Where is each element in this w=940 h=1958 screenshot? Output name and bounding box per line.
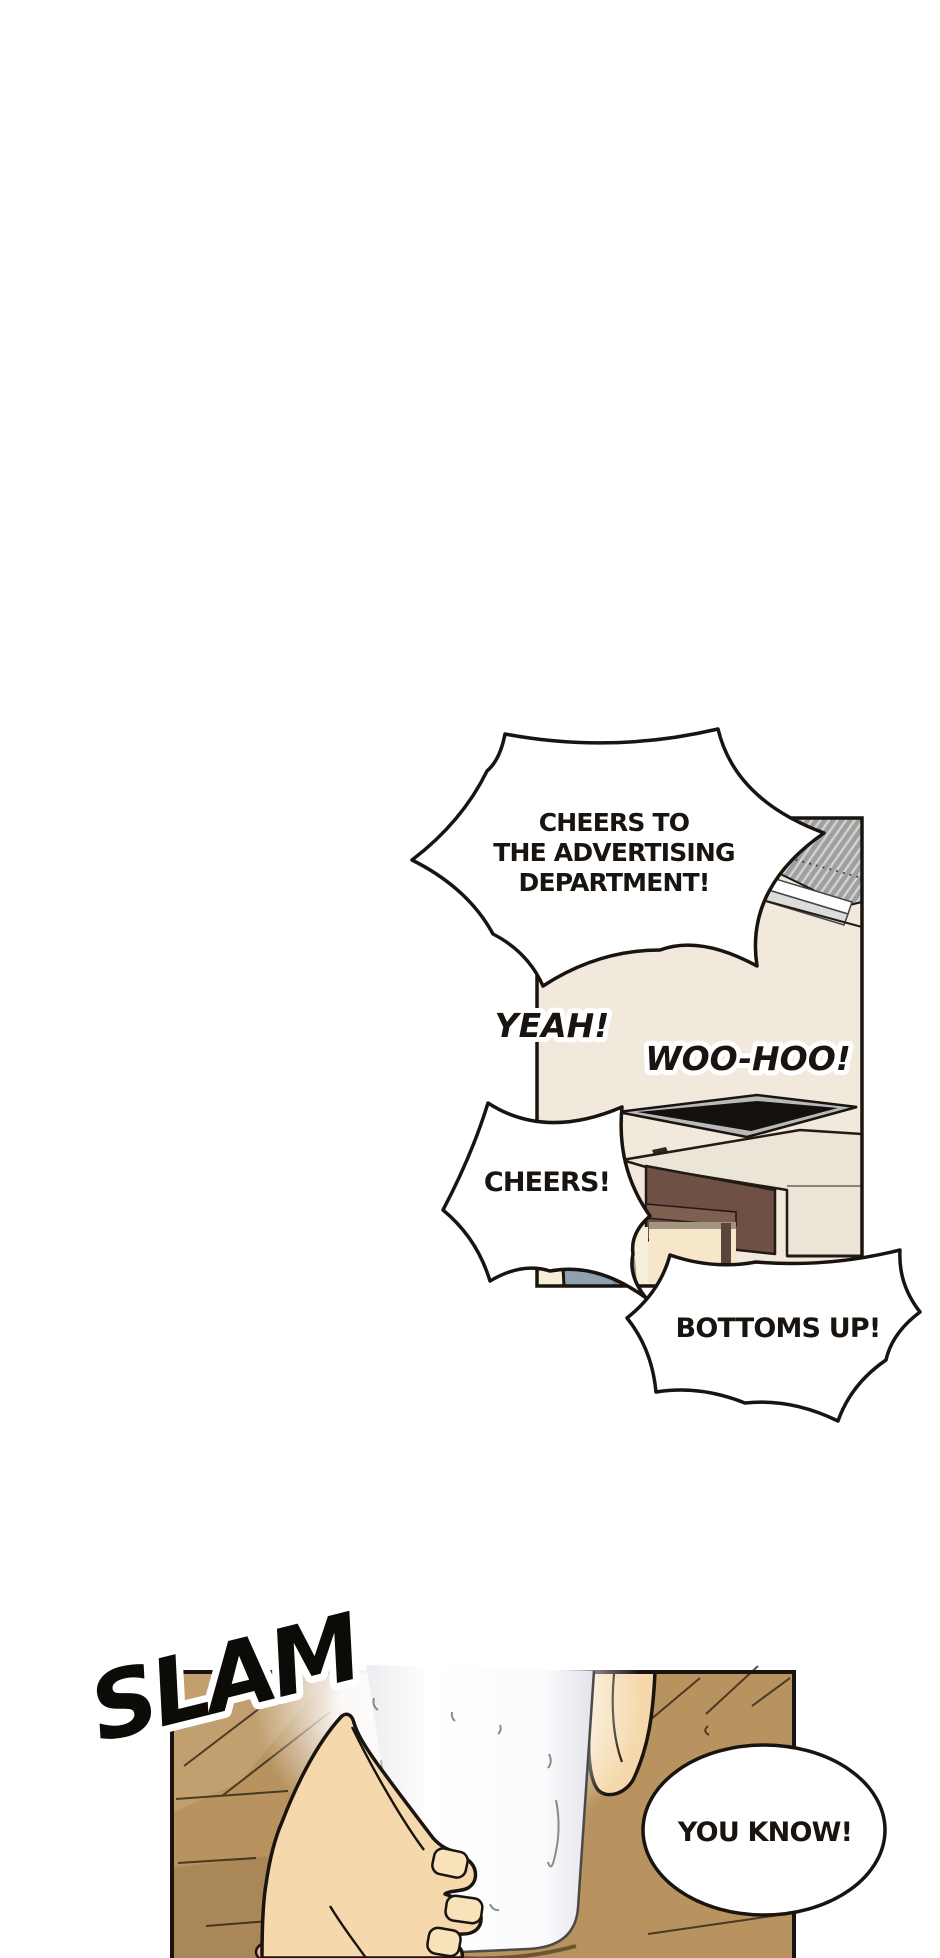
bubble-text-line2: THE ADVERTISING: [493, 838, 735, 867]
sfx-woohoo: WOO-HOO!: [645, 1039, 851, 1078]
fingernail-2: [444, 1895, 483, 1925]
fingernail-3: [426, 1926, 462, 1957]
bubble-text-line3: DEPARTMENT!: [519, 868, 710, 897]
bubble-text: YOU KNOW!: [677, 1817, 852, 1848]
bubble-text: CHEERS!: [484, 1167, 610, 1198]
bubble-text-line1: CHEERS TO: [539, 808, 690, 837]
speech-bubble-you-know: YOU KNOW!: [643, 1745, 885, 1915]
sfx-yeah: YEAH!: [495, 1006, 610, 1045]
comic-page: YOU KNOW! CHEERS TO THE ADVERTISING DEPA…: [0, 0, 940, 1958]
bubble-text: BOTTOMS UP!: [676, 1313, 881, 1344]
